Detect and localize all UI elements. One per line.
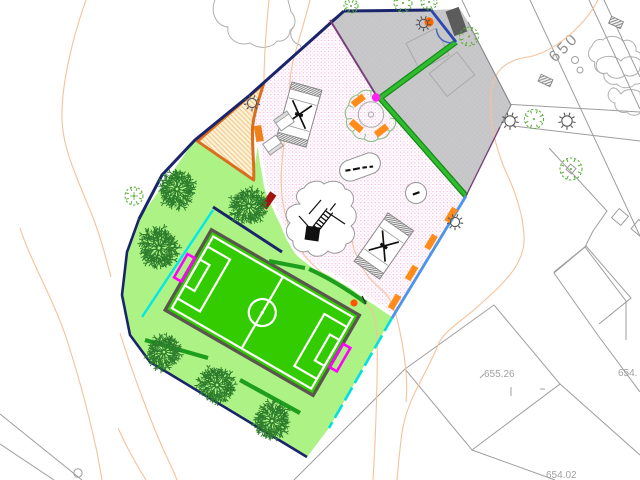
svg-text:654.: 654.	[618, 368, 637, 379]
svg-text:655.26: 655.26	[484, 369, 515, 380]
svg-text:654.02: 654.02	[546, 470, 577, 480]
